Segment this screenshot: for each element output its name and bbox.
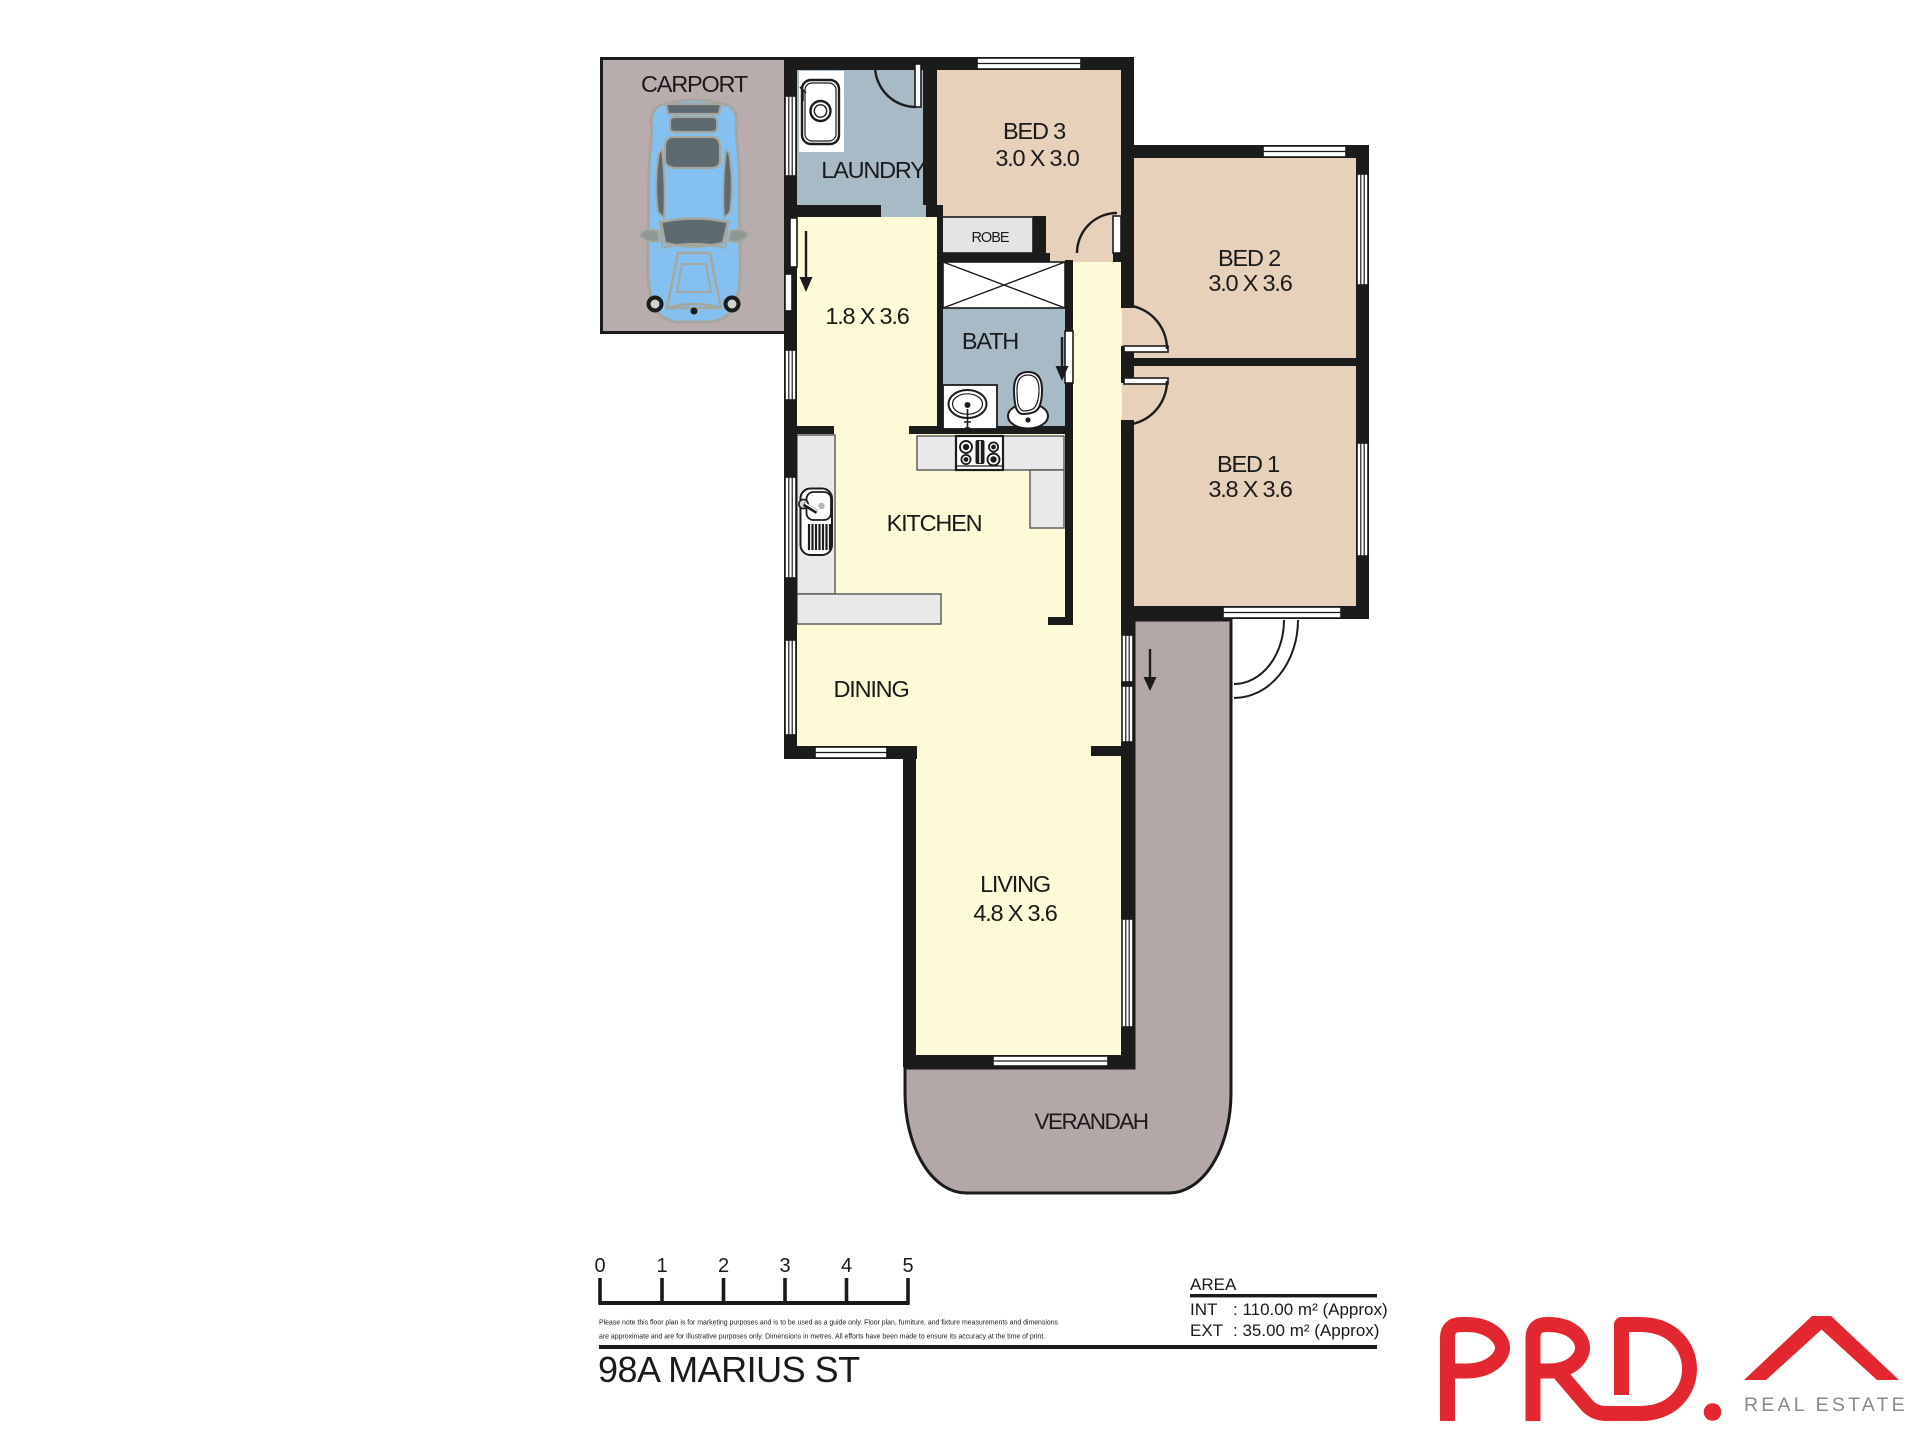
svg-text:2: 2 xyxy=(718,1255,729,1277)
svg-text:KITCHEN: KITCHEN xyxy=(887,510,982,536)
svg-text:3: 3 xyxy=(779,1255,790,1277)
svg-text:BED 2: BED 2 xyxy=(1218,245,1280,271)
svg-text:: 35.00 m² (Approx): : 35.00 m² (Approx) xyxy=(1233,1321,1379,1340)
svg-text:AREA: AREA xyxy=(1190,1275,1237,1294)
svg-text:are approximate and are for il: are approximate and are for illustrative… xyxy=(599,1334,1045,1341)
svg-text:4: 4 xyxy=(841,1255,852,1277)
svg-text:3.0 X 3.6: 3.0 X 3.6 xyxy=(1208,270,1292,296)
svg-text:DINING: DINING xyxy=(833,676,908,702)
svg-text:3.0 X 3.0: 3.0 X 3.0 xyxy=(995,145,1079,171)
svg-text:VERANDAH: VERANDAH xyxy=(1034,1109,1147,1134)
svg-text:: 110.00 m² (Approx): : 110.00 m² (Approx) xyxy=(1233,1300,1388,1319)
svg-text:4.8 X 3.6: 4.8 X 3.6 xyxy=(973,900,1057,926)
svg-text:5: 5 xyxy=(902,1255,913,1277)
svg-text:BED 3: BED 3 xyxy=(1003,118,1066,144)
svg-text:BED 1: BED 1 xyxy=(1217,451,1279,477)
svg-text:EXT: EXT xyxy=(1190,1321,1223,1340)
svg-text:CARPORT: CARPORT xyxy=(641,71,748,97)
svg-text:1: 1 xyxy=(656,1255,667,1277)
svg-text:LAUNDRY: LAUNDRY xyxy=(821,157,926,183)
svg-text:INT: INT xyxy=(1190,1300,1217,1319)
svg-text:Please note this floor plan is: Please note this floor plan is for marke… xyxy=(599,1320,1059,1327)
svg-text:98A MARIUS ST: 98A MARIUS ST xyxy=(598,1349,860,1390)
svg-text:1.8 X 3.6: 1.8 X 3.6 xyxy=(825,303,909,329)
svg-text:3.8 X 3.6: 3.8 X 3.6 xyxy=(1208,476,1292,502)
svg-text:0: 0 xyxy=(594,1255,605,1277)
svg-text:REAL ESTATE: REAL ESTATE xyxy=(1744,1394,1908,1416)
svg-text:ROBE: ROBE xyxy=(971,230,1009,246)
svg-text:BATH: BATH xyxy=(962,328,1018,354)
svg-text:LIVING: LIVING xyxy=(980,871,1050,897)
